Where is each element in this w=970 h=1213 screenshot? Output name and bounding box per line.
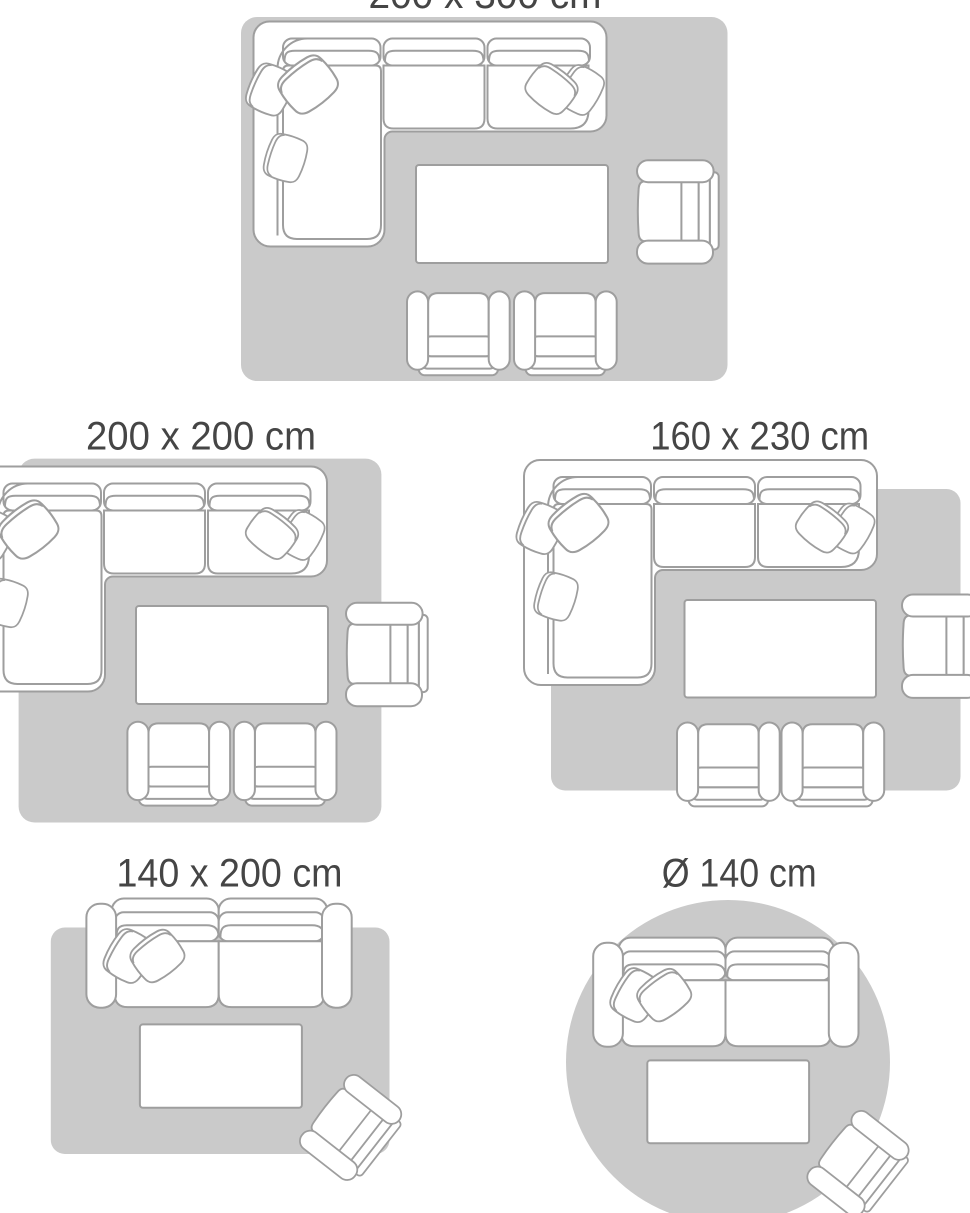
svg-text:140 x 200 cm: 140 x 200 cm [117, 851, 343, 895]
svg-text:Ø 140 cm: Ø 140 cm [662, 851, 817, 895]
svg-text:200 x 300 cm: 200 x 300 cm [369, 0, 602, 17]
svg-text:160 x 230 cm: 160 x 230 cm [650, 415, 869, 459]
svg-text:200 x 200 cm: 200 x 200 cm [86, 415, 316, 459]
